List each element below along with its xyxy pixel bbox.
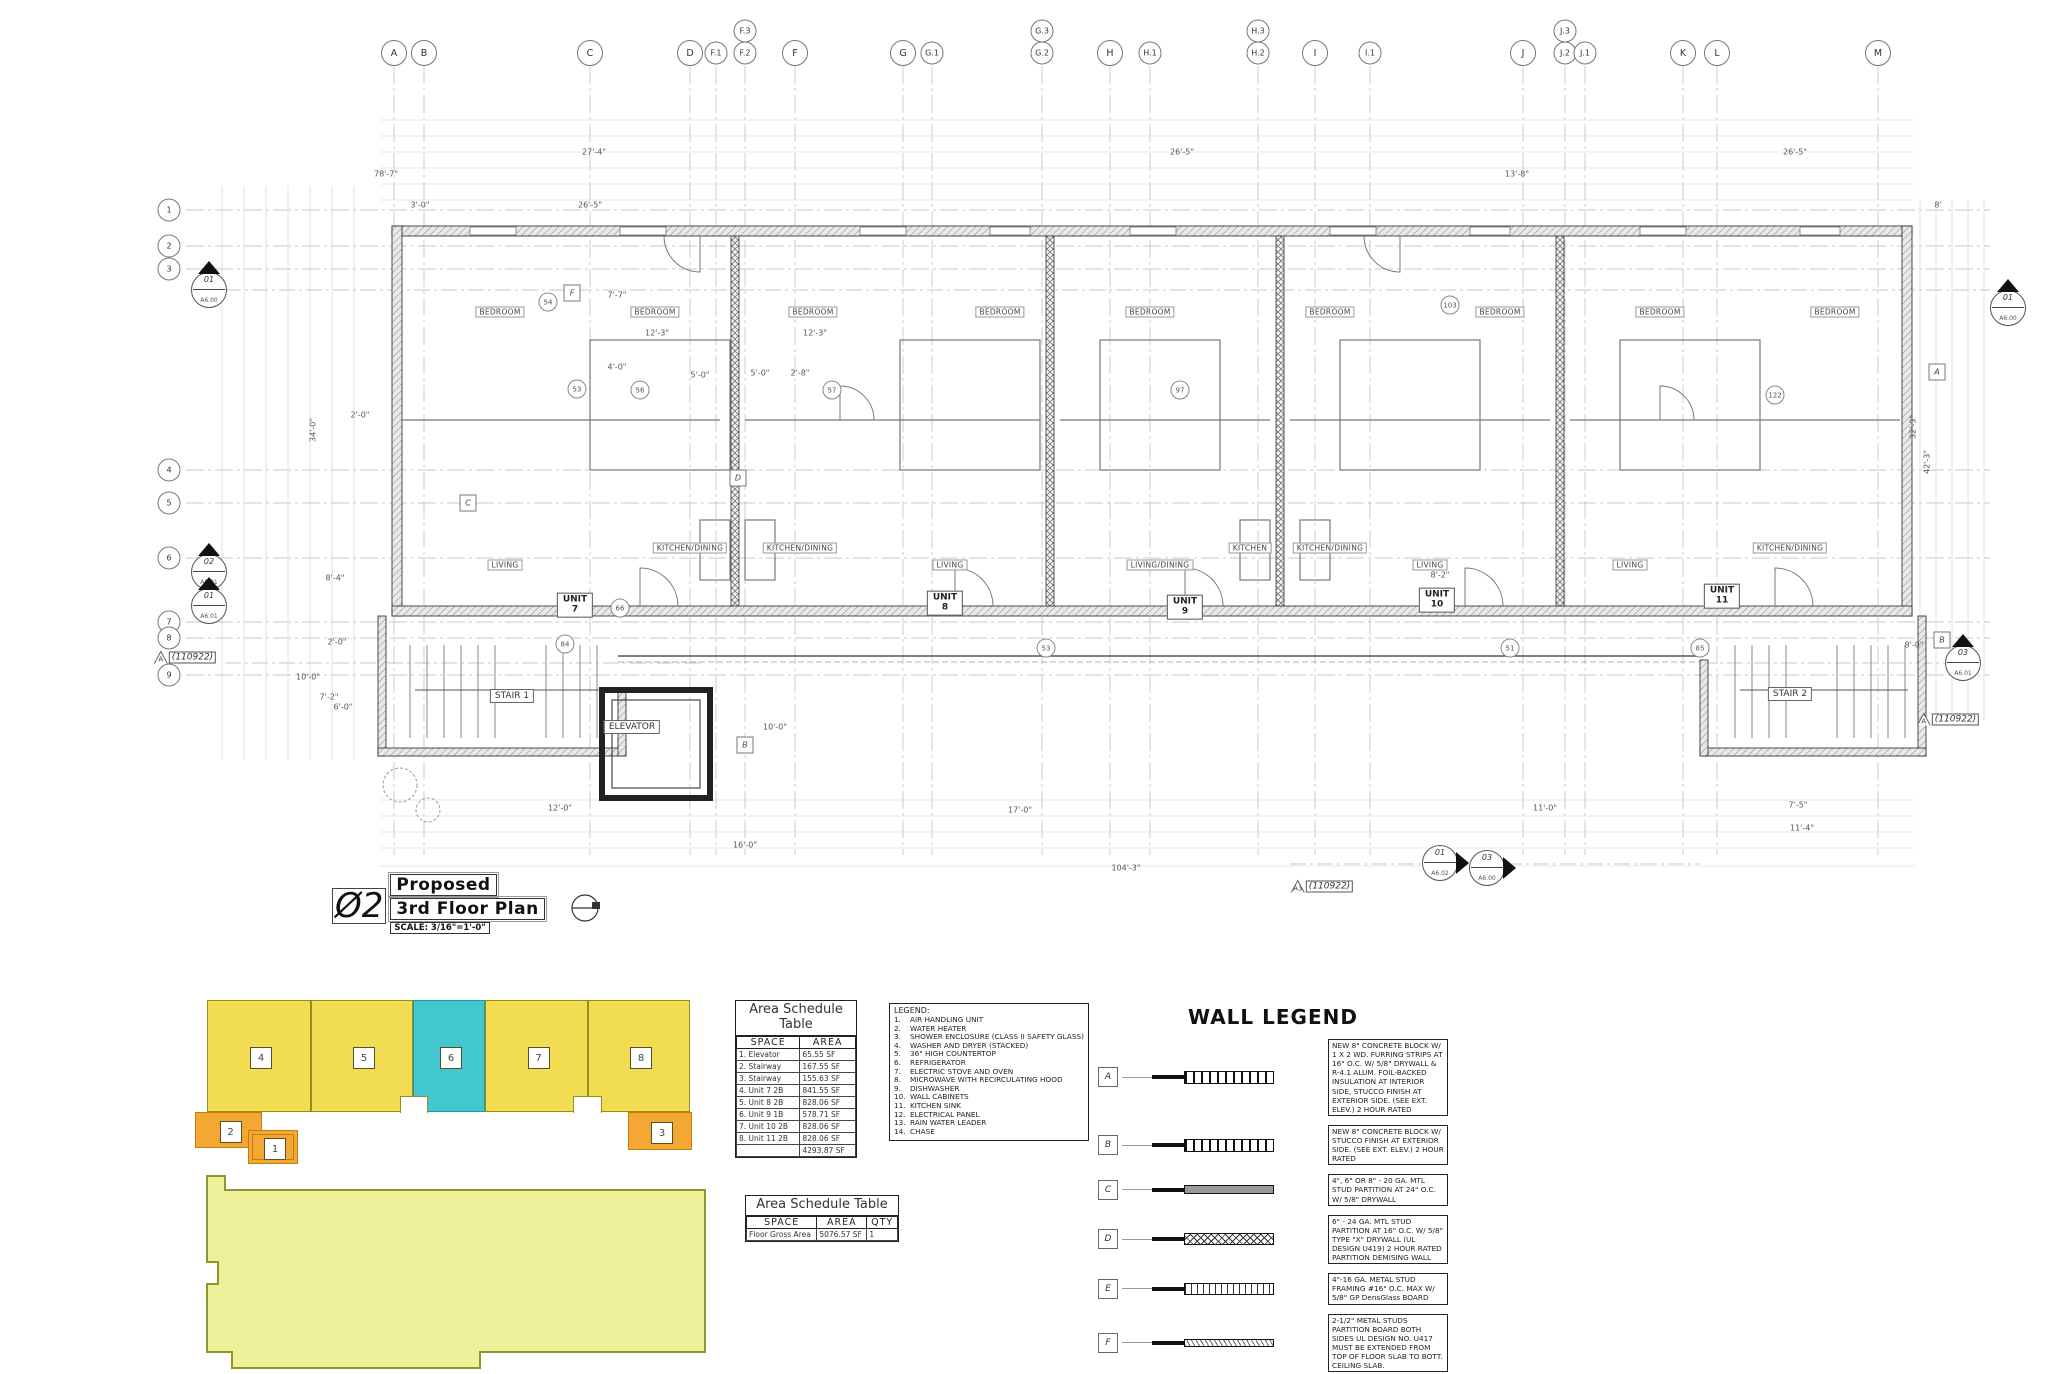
room-label: KITCHEN/DINING <box>653 543 727 554</box>
room-label: BEDROOM <box>975 307 1024 318</box>
revision-triangle-icon: A <box>1917 713 1931 726</box>
keyplan-number-chip: 2 <box>220 1121 242 1143</box>
room-label: KITCHEN/DINING <box>1293 543 1367 554</box>
wall-type-tag: A <box>1929 364 1946 381</box>
unit-label: UNIT 11 <box>1704 584 1740 609</box>
section-marker: 01A6.00 <box>191 272 227 308</box>
section-marker: 03A6.01 <box>1945 645 1981 681</box>
room-label: LIVING <box>1413 560 1448 571</box>
dimension-label: 12'-3" <box>645 329 669 338</box>
keyplan-block-1: 1 <box>248 1130 298 1164</box>
revision-triangle-icon: A3 <box>1291 880 1305 893</box>
grid-bubble-F.3: F.3 <box>734 20 757 43</box>
dimension-label: 2'-0" <box>328 638 347 647</box>
keynote-circle: 57 <box>823 381 842 400</box>
dimension-label: 8' <box>1934 201 1941 210</box>
core-label: ELEVATOR <box>604 720 660 734</box>
room-label: BEDROOM <box>475 307 524 318</box>
keynote-circle: 56 <box>631 381 650 400</box>
dimension-label: 10'-0" <box>763 723 787 732</box>
dimension-label: 32'-3" <box>1909 415 1918 439</box>
keyplan-number-chip: 1 <box>264 1138 286 1160</box>
wall-type-tag: C <box>460 495 477 512</box>
dimension-label: 6'-0" <box>334 703 353 712</box>
dimension-label: 2'-0" <box>351 411 370 420</box>
keynote-circle: 97 <box>1171 381 1190 400</box>
grid-bubble-I: I <box>1302 40 1328 66</box>
unit-label: UNIT 10 <box>1419 588 1455 613</box>
grid-bubble-C: C <box>577 40 603 66</box>
grid-bubble-D: D <box>677 40 703 66</box>
grid-bubble-G.3: G.3 <box>1031 20 1054 43</box>
wall-type-tag: F <box>564 285 581 302</box>
keyplan-block-3: 3 <box>628 1112 692 1150</box>
keyplan-number-chip: 6 <box>440 1047 462 1069</box>
unit-label: UNIT 8 <box>927 591 963 616</box>
revision-tag: A(110922) <box>1917 713 1979 726</box>
room-label: BEDROOM <box>1635 307 1684 318</box>
grid-bubble-B: B <box>411 40 437 66</box>
section-marker-arrow <box>1456 852 1469 874</box>
unit-label: UNIT 9 <box>1167 595 1203 620</box>
grid-bubble-row-8: 8 <box>158 627 181 650</box>
dimension-label: 13'-8" <box>1505 170 1529 179</box>
dimension-label: 12'-0" <box>548 804 572 813</box>
dimension-label: 4'-0" <box>608 363 627 372</box>
grid-bubble-row-3: 3 <box>158 258 181 281</box>
dimension-label: 104'-3" <box>1111 864 1140 873</box>
grid-bubble-H.1: H.1 <box>1139 42 1162 65</box>
dimension-label: 12'-3" <box>803 329 827 338</box>
dimension-label: 42'-3" <box>1923 450 1932 474</box>
keyplan-block-8: 8 <box>588 1000 690 1112</box>
room-label: BEDROOM <box>1305 307 1354 318</box>
dimension-label: 34'-0" <box>309 418 318 442</box>
dimension-label: 26'-5" <box>1170 148 1194 157</box>
dimension-label: 7'-5" <box>1789 801 1808 810</box>
architectural-sheet: ABCDF.1F.3F.2FGG.1G.3G.2HH.1H.3H.2II.1JJ… <box>0 0 2048 1374</box>
section-marker-arrow <box>198 543 220 556</box>
core-label: STAIR 1 <box>490 689 534 703</box>
dimension-label: 26'-5" <box>1783 148 1807 157</box>
grid-bubble-H: H <box>1097 40 1123 66</box>
dimension-label: 7'-2" <box>320 693 339 702</box>
keynote-circle: 122 <box>1766 386 1785 405</box>
grid-bubble-G: G <box>890 40 916 66</box>
grid-bubble-row-5: 5 <box>158 492 181 515</box>
dimension-label: 7'-7" <box>608 291 627 300</box>
room-label: LIVING/DINING <box>1127 560 1194 571</box>
room-label: BEDROOM <box>1810 307 1859 318</box>
keynote-circle: 51 <box>1501 639 1520 658</box>
section-marker: 01A6.00 <box>1990 290 2026 326</box>
grid-bubble-K: K <box>1670 40 1696 66</box>
grid-bubble-G.2: G.2 <box>1031 42 1054 65</box>
keyplan-block-4: 4 <box>207 1000 311 1112</box>
room-label: BEDROOM <box>630 307 679 318</box>
room-label: KITCHEN/DINING <box>763 543 837 554</box>
wall-type-tag: B <box>737 737 754 754</box>
grid-bubble-F.2: F.2 <box>734 42 757 65</box>
keyplan-number-chip: 4 <box>250 1047 272 1069</box>
room-label: KITCHEN/DINING <box>1753 543 1827 554</box>
section-marker-arrow <box>1997 279 2019 292</box>
keyplan-number-chip: 3 <box>651 1122 673 1144</box>
keyplan-number-chip: 5 <box>353 1047 375 1069</box>
annotation-overlay: ABCDF.1F.3F.2FGG.1G.3G.2HH.1H.3H.2II.1JJ… <box>0 0 2048 1374</box>
dimension-label: 3'-0" <box>411 201 430 210</box>
grid-bubble-row-1: 1 <box>158 199 181 222</box>
grid-bubble-J.1: J.1 <box>1574 42 1597 65</box>
grid-bubble-J: J <box>1510 40 1536 66</box>
section-marker-arrow <box>198 577 220 590</box>
grid-bubble-H.3: H.3 <box>1247 20 1270 43</box>
grid-bubble-F.1: F.1 <box>705 42 728 65</box>
dimension-label: 10'-0" <box>296 673 320 682</box>
section-marker-arrow <box>1503 857 1516 879</box>
dimension-label: 16'-0" <box>733 841 757 850</box>
dimension-label: 5'-0" <box>691 371 710 380</box>
grid-bubble-I.1: I.1 <box>1359 42 1382 65</box>
wall-type-tag: D <box>730 470 747 487</box>
revision-triangle-icon: A <box>154 651 168 664</box>
grid-bubble-M: M <box>1865 40 1891 66</box>
grid-bubble-F: F <box>782 40 808 66</box>
dimension-label: 2'-8" <box>791 369 810 378</box>
dimension-label: 8'-0" <box>1905 641 1924 650</box>
room-label: BEDROOM <box>1125 307 1174 318</box>
dimension-label: 5'-0" <box>751 369 770 378</box>
dimension-label: 8'-2" <box>1431 571 1450 580</box>
keyplan-notch <box>400 1096 428 1113</box>
grid-bubble-A: A <box>381 40 407 66</box>
room-label: LIVING <box>1613 560 1648 571</box>
keyplan-number-chip: 7 <box>528 1047 550 1069</box>
keynote-circle: 66 <box>611 599 630 618</box>
keyplan-notch <box>573 1096 602 1113</box>
section-marker-arrow <box>1952 634 1974 647</box>
grid-bubble-row-9: 9 <box>158 664 181 687</box>
keynote-circle: 85 <box>1691 639 1710 658</box>
grid-bubble-L: L <box>1704 40 1730 66</box>
dimension-label: 11'-4" <box>1790 824 1814 833</box>
dimension-label: 8'-4" <box>326 574 345 583</box>
keynote-circle: 84 <box>556 635 575 654</box>
section-marker: 03A6.00 <box>1469 850 1505 886</box>
revision-tag: A3(110922) <box>1291 880 1353 893</box>
room-label: BEDROOM <box>788 307 837 318</box>
grid-bubble-J.3: J.3 <box>1554 20 1577 43</box>
wall-type-tag: B <box>1934 632 1951 649</box>
keynote-circle: 103 <box>1441 296 1460 315</box>
room-label: LIVING <box>488 560 523 571</box>
section-marker: 01A6.02 <box>1422 845 1458 881</box>
room-label: LIVING <box>933 560 968 571</box>
keynote-circle: 53 <box>568 380 587 399</box>
core-label: STAIR 2 <box>1768 687 1812 701</box>
dimension-label: 78'-7" <box>374 170 398 179</box>
dimension-label: 26'-5" <box>578 201 602 210</box>
keynote-circle: 54 <box>539 293 558 312</box>
keynote-circle: 53 <box>1037 639 1056 658</box>
revision-tag: A(110922) <box>154 651 216 664</box>
grid-bubble-row-4: 4 <box>158 459 181 482</box>
section-marker: 01A6.01 <box>191 588 227 624</box>
section-marker-arrow <box>198 261 220 274</box>
keyplan-number-chip: 8 <box>630 1047 652 1069</box>
grid-bubble-row-6: 6 <box>158 547 181 570</box>
dimension-label: 17'-0" <box>1008 806 1032 815</box>
room-label: BEDROOM <box>1475 307 1524 318</box>
room-label: KITCHEN <box>1229 543 1272 554</box>
grid-bubble-G.1: G.1 <box>921 42 944 65</box>
dimension-label: 11'-0" <box>1533 804 1557 813</box>
grid-bubble-row-2: 2 <box>158 235 181 258</box>
keyplan-block-5: 5 <box>311 1000 413 1112</box>
dimension-label: 27'-4" <box>582 148 606 157</box>
grid-bubble-H.2: H.2 <box>1247 42 1270 65</box>
unit-label: UNIT 7 <box>557 593 593 618</box>
